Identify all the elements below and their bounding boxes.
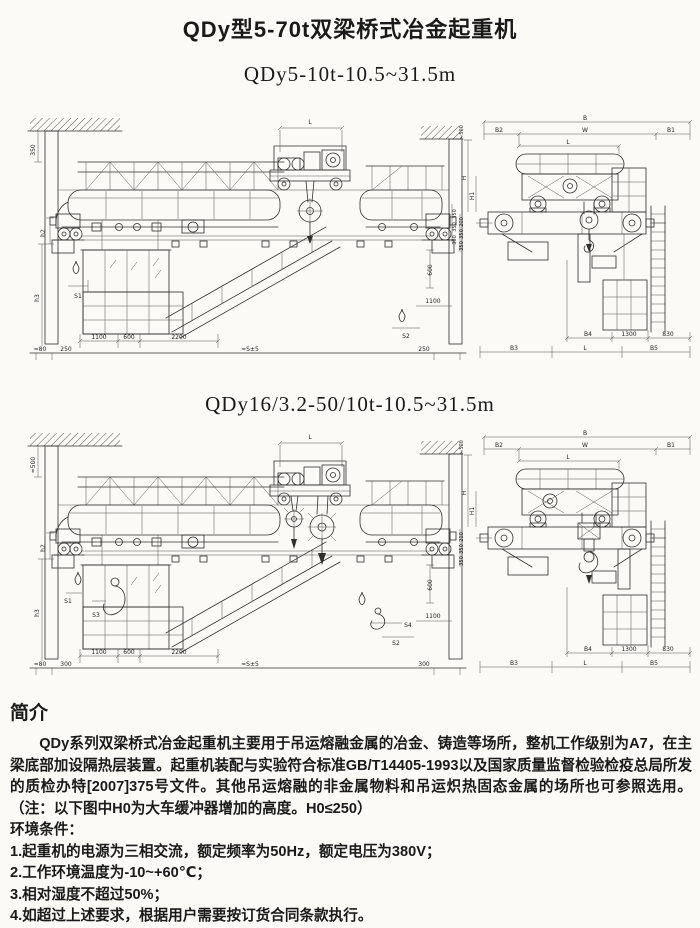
dim-lstack-0: 200 <box>459 217 465 227</box>
dim-left-end: 300 <box>60 661 72 668</box>
side-view-ladder <box>651 521 665 647</box>
drive-shaft <box>62 535 278 548</box>
side-view-hook <box>578 513 600 584</box>
dim-rstack-2: 300 <box>452 235 458 245</box>
condition-item-1: 1.起重机的电源为三相交流，额定频率为50Hz，额定电压为380V； <box>10 842 692 864</box>
side-dimension-lines <box>460 435 692 673</box>
dim-s3: S3 <box>92 612 100 619</box>
dim-2200: 2200 <box>171 649 186 656</box>
dim-s2: S2 <box>402 333 410 340</box>
dim-w: W <box>582 127 588 134</box>
dim-h3: h3 <box>34 294 41 302</box>
condition-item-4: 4.如超过上述要求，根据用户需要按订货合同条款执行。 <box>10 906 692 928</box>
dim-r1100: 1100 <box>425 298 440 305</box>
hoist-symbol-right <box>359 592 414 637</box>
page-title: QDy型5-70t双梁桥式冶金起重机 <box>0 12 700 44</box>
dim-lstack-1: 350 <box>459 229 465 239</box>
dim-lstack-1: 350 <box>459 544 465 554</box>
bridge-girder-right <box>360 166 444 231</box>
dim-s1: S1 <box>64 598 72 605</box>
dim-830: 830 <box>662 646 674 653</box>
dim-v500: ≈500 <box>459 125 465 139</box>
side-dimension-lines <box>460 120 692 358</box>
dim-500: ≈500 <box>30 457 37 474</box>
dim-b1: B1 <box>667 127 675 134</box>
dim-r1100: 1100 <box>425 613 440 620</box>
condition-item-2: 2.工作环境温度为-10~+60℃； <box>10 863 692 885</box>
dim-right-end: 300 <box>418 661 430 668</box>
bridge-girder-right <box>360 481 444 546</box>
dim-600: 600 <box>123 334 135 341</box>
env-conditions-label: 环境条件： <box>10 820 692 842</box>
dim-b4: B4 <box>584 646 592 653</box>
dim-b5: B5 <box>650 660 658 667</box>
dim-h1: H1 <box>469 507 476 516</box>
dim-lstack-2: 350 <box>459 241 465 251</box>
trolley <box>270 146 350 190</box>
festoon-hangers <box>172 241 392 247</box>
dim-r600: 600 <box>427 579 434 591</box>
dim-h: H <box>461 491 468 496</box>
side-view-bridge <box>476 208 666 282</box>
dim-l-bot: L <box>583 660 587 667</box>
side-view-trolley <box>516 154 624 212</box>
dim-2200: 2200 <box>171 334 186 341</box>
dim-b3: B3 <box>510 660 518 667</box>
intro-paragraph: QDy系列双梁桥式冶金起重机主要用于吊运熔融金属的冶金、铸造等场所，整机工作级别… <box>10 734 692 820</box>
side-view-stair-box <box>612 483 646 527</box>
dim-l-top: L <box>566 139 570 146</box>
dim-b5: B5 <box>650 345 658 352</box>
staircase <box>166 227 340 338</box>
dim-h3: h3 <box>34 609 41 617</box>
side-view-bridge <box>476 523 666 589</box>
dim-h2: h2 <box>40 544 47 552</box>
trolley <box>270 461 350 505</box>
dim-1100: 1100 <box>91 334 106 341</box>
condition-item-3: 3.相对湿度不超过50%； <box>10 885 692 907</box>
building-walls <box>28 433 466 668</box>
front-dimension-lines <box>34 126 460 360</box>
dim-left-end: 250 <box>60 346 72 353</box>
side-view-platform-grid <box>603 234 647 330</box>
dim-l: L <box>308 434 312 441</box>
dim-span: ≈S±5 <box>241 661 259 668</box>
cab-hook-symbol <box>92 578 125 615</box>
dim-1100: 1100 <box>91 649 106 656</box>
dim-b4: B4 <box>584 331 592 338</box>
dim-rstack-0: 350 <box>452 209 458 219</box>
hook-block <box>297 181 323 244</box>
dim-s4: S4 <box>404 622 412 629</box>
dim-v500: ≈500 <box>459 440 465 454</box>
intro-heading: 简介 <box>10 698 692 725</box>
dim-l-top: L <box>566 454 570 461</box>
dim-h2: h2 <box>40 229 47 237</box>
dim-right-end: 250 <box>418 346 430 353</box>
dim-830: 830 <box>662 331 674 338</box>
building-walls <box>28 118 466 353</box>
dim-h1: H1 <box>469 192 476 201</box>
dim-l: L <box>308 119 312 126</box>
side-view-stair-box <box>612 168 646 212</box>
side-view-ladder <box>651 206 665 332</box>
drive-shaft <box>62 220 278 233</box>
side-view-platform-grid <box>603 595 647 645</box>
figure1-subtitle: QDy5-10t-10.5~31.5m <box>0 62 700 87</box>
dim-600: 600 <box>123 649 135 656</box>
dim-span: ≈S±5 <box>241 346 259 353</box>
hoist-symbol-left <box>68 261 88 292</box>
dim-h: H <box>461 176 468 181</box>
figure1-crane-drawing: 350 h2 h3 S1 L 1100 600 2200 ≈80 250 ≈S±… <box>22 110 698 370</box>
dim-l-bot: L <box>583 345 587 352</box>
hoist-symbol-left <box>66 572 82 593</box>
dim-rstack-1: 350 <box>452 222 458 232</box>
dim-b2: B2 <box>495 442 503 449</box>
dim-350: 350 <box>30 144 37 156</box>
intro-section: 简介 QDy系列双梁桥式冶金起重机主要用于吊运熔融金属的冶金、铸造等场所，整机工… <box>10 698 692 928</box>
festoon-hangers <box>172 556 392 562</box>
dim-b1: B1 <box>667 442 675 449</box>
staircase <box>166 542 340 653</box>
dim-b: B <box>583 430 587 437</box>
dim-1300: 1300 <box>621 646 636 653</box>
dim-s1: S1 <box>74 293 82 300</box>
side-view-hook <box>580 202 598 252</box>
dim-b2: B2 <box>495 127 503 134</box>
dim-r600: 600 <box>427 264 434 276</box>
dim-b3: B3 <box>510 345 518 352</box>
dim-b: B <box>583 115 587 122</box>
dim-approx80: ≈80 <box>34 346 47 353</box>
dim-s2: S2 <box>392 640 400 647</box>
dim-1300: 1300 <box>621 331 636 338</box>
dim-approx80: ≈80 <box>34 661 47 668</box>
hoist-symbol-right <box>392 309 420 328</box>
figure2-subtitle: QDy16/3.2-50/10t-10.5~31.5m <box>0 392 700 417</box>
dim-w: W <box>582 442 588 449</box>
side-view-trolley <box>516 469 624 527</box>
figure2-crane-drawing: ≈500 h2 h3 S1 S3 L 1100 600 2200 ≈80 300… <box>22 425 698 685</box>
dim-lstack-2: 350 <box>459 556 465 566</box>
dim-lstack-0: 200 <box>459 532 465 542</box>
